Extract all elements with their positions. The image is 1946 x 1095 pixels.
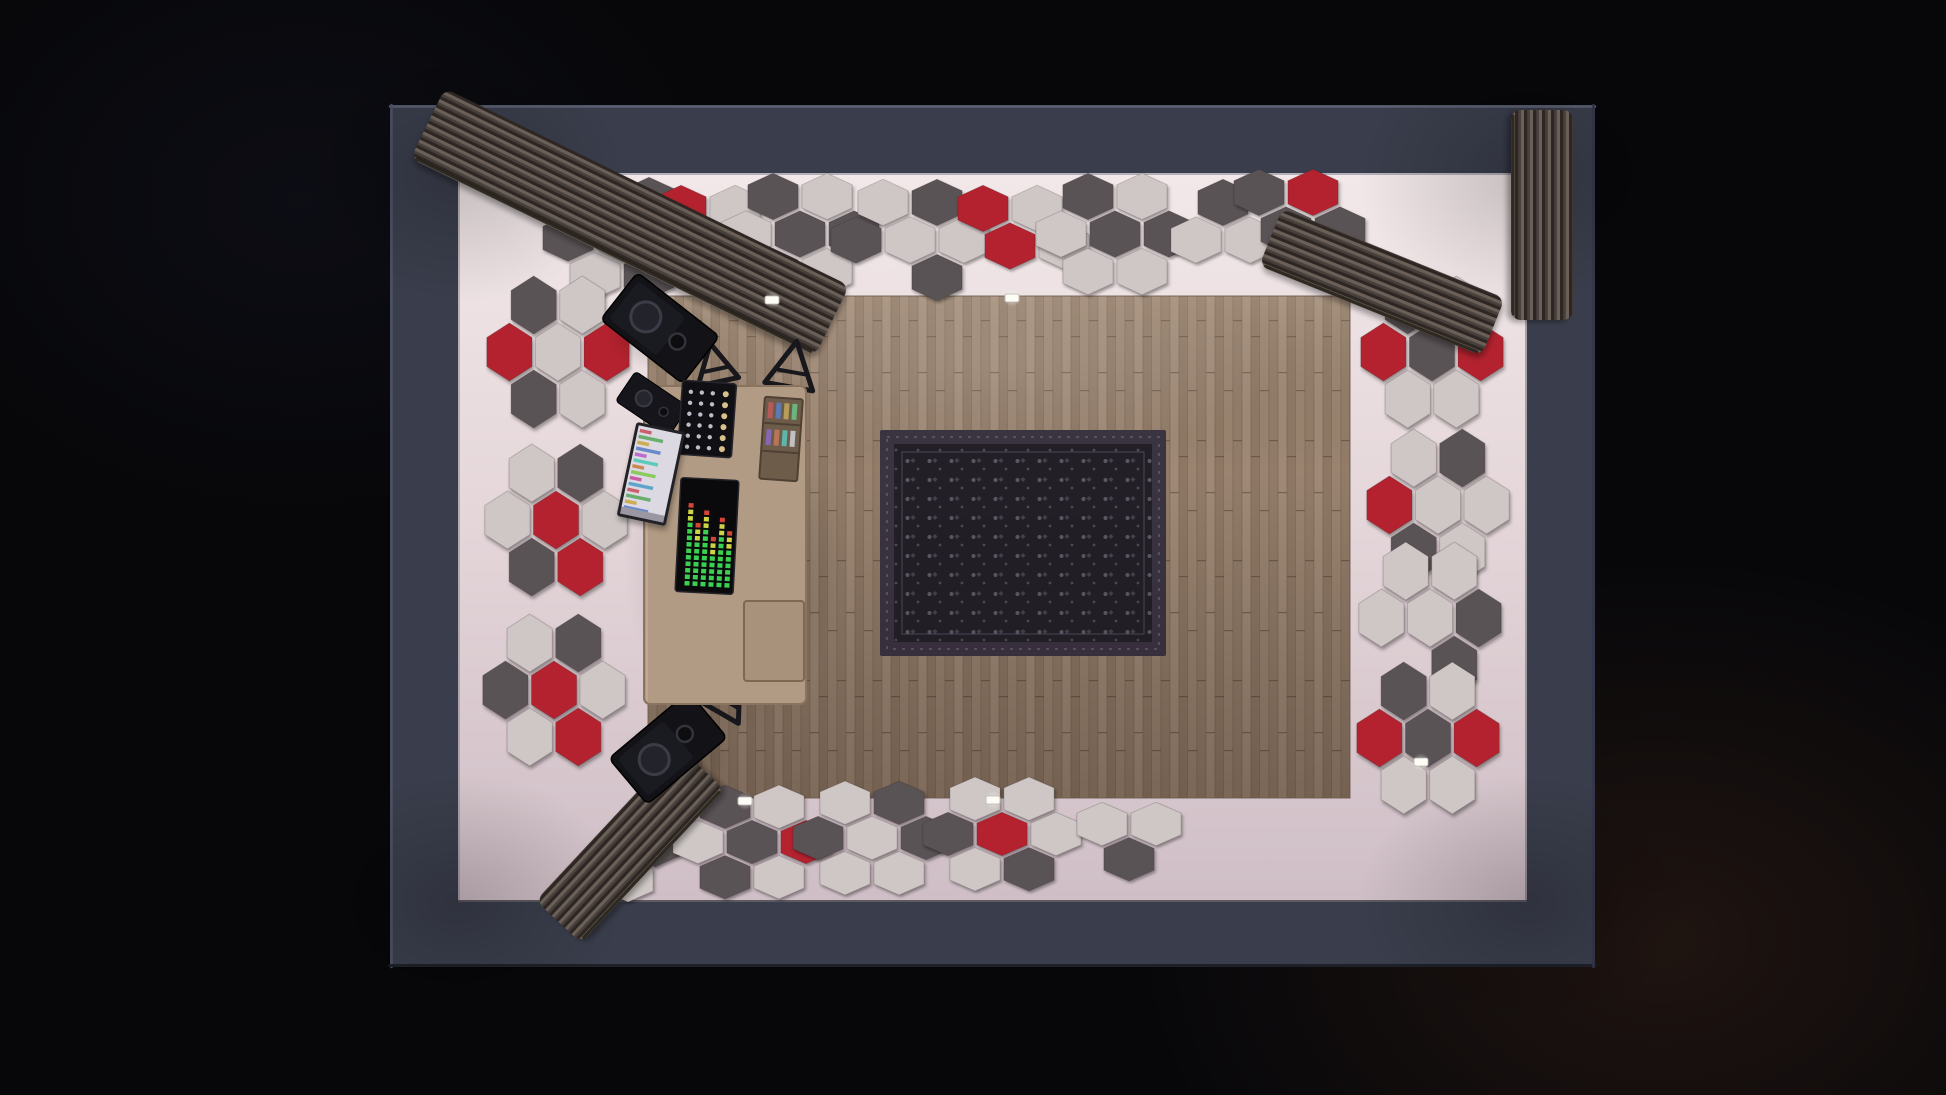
mixer-meter-rack (675, 478, 739, 595)
scene-canvas (0, 0, 1946, 1095)
rack-unit-top (677, 380, 736, 458)
curtain-right-wall (1511, 110, 1573, 320)
recessed-light (765, 296, 779, 304)
record-cabinet (759, 397, 803, 481)
recessed-light (986, 796, 1000, 804)
recessed-light (738, 797, 752, 805)
persian-rug (880, 430, 1166, 656)
recessed-light (1414, 758, 1428, 766)
recessed-light (1005, 294, 1019, 302)
desk-return (744, 601, 804, 681)
studio-room-render (0, 0, 1946, 1095)
